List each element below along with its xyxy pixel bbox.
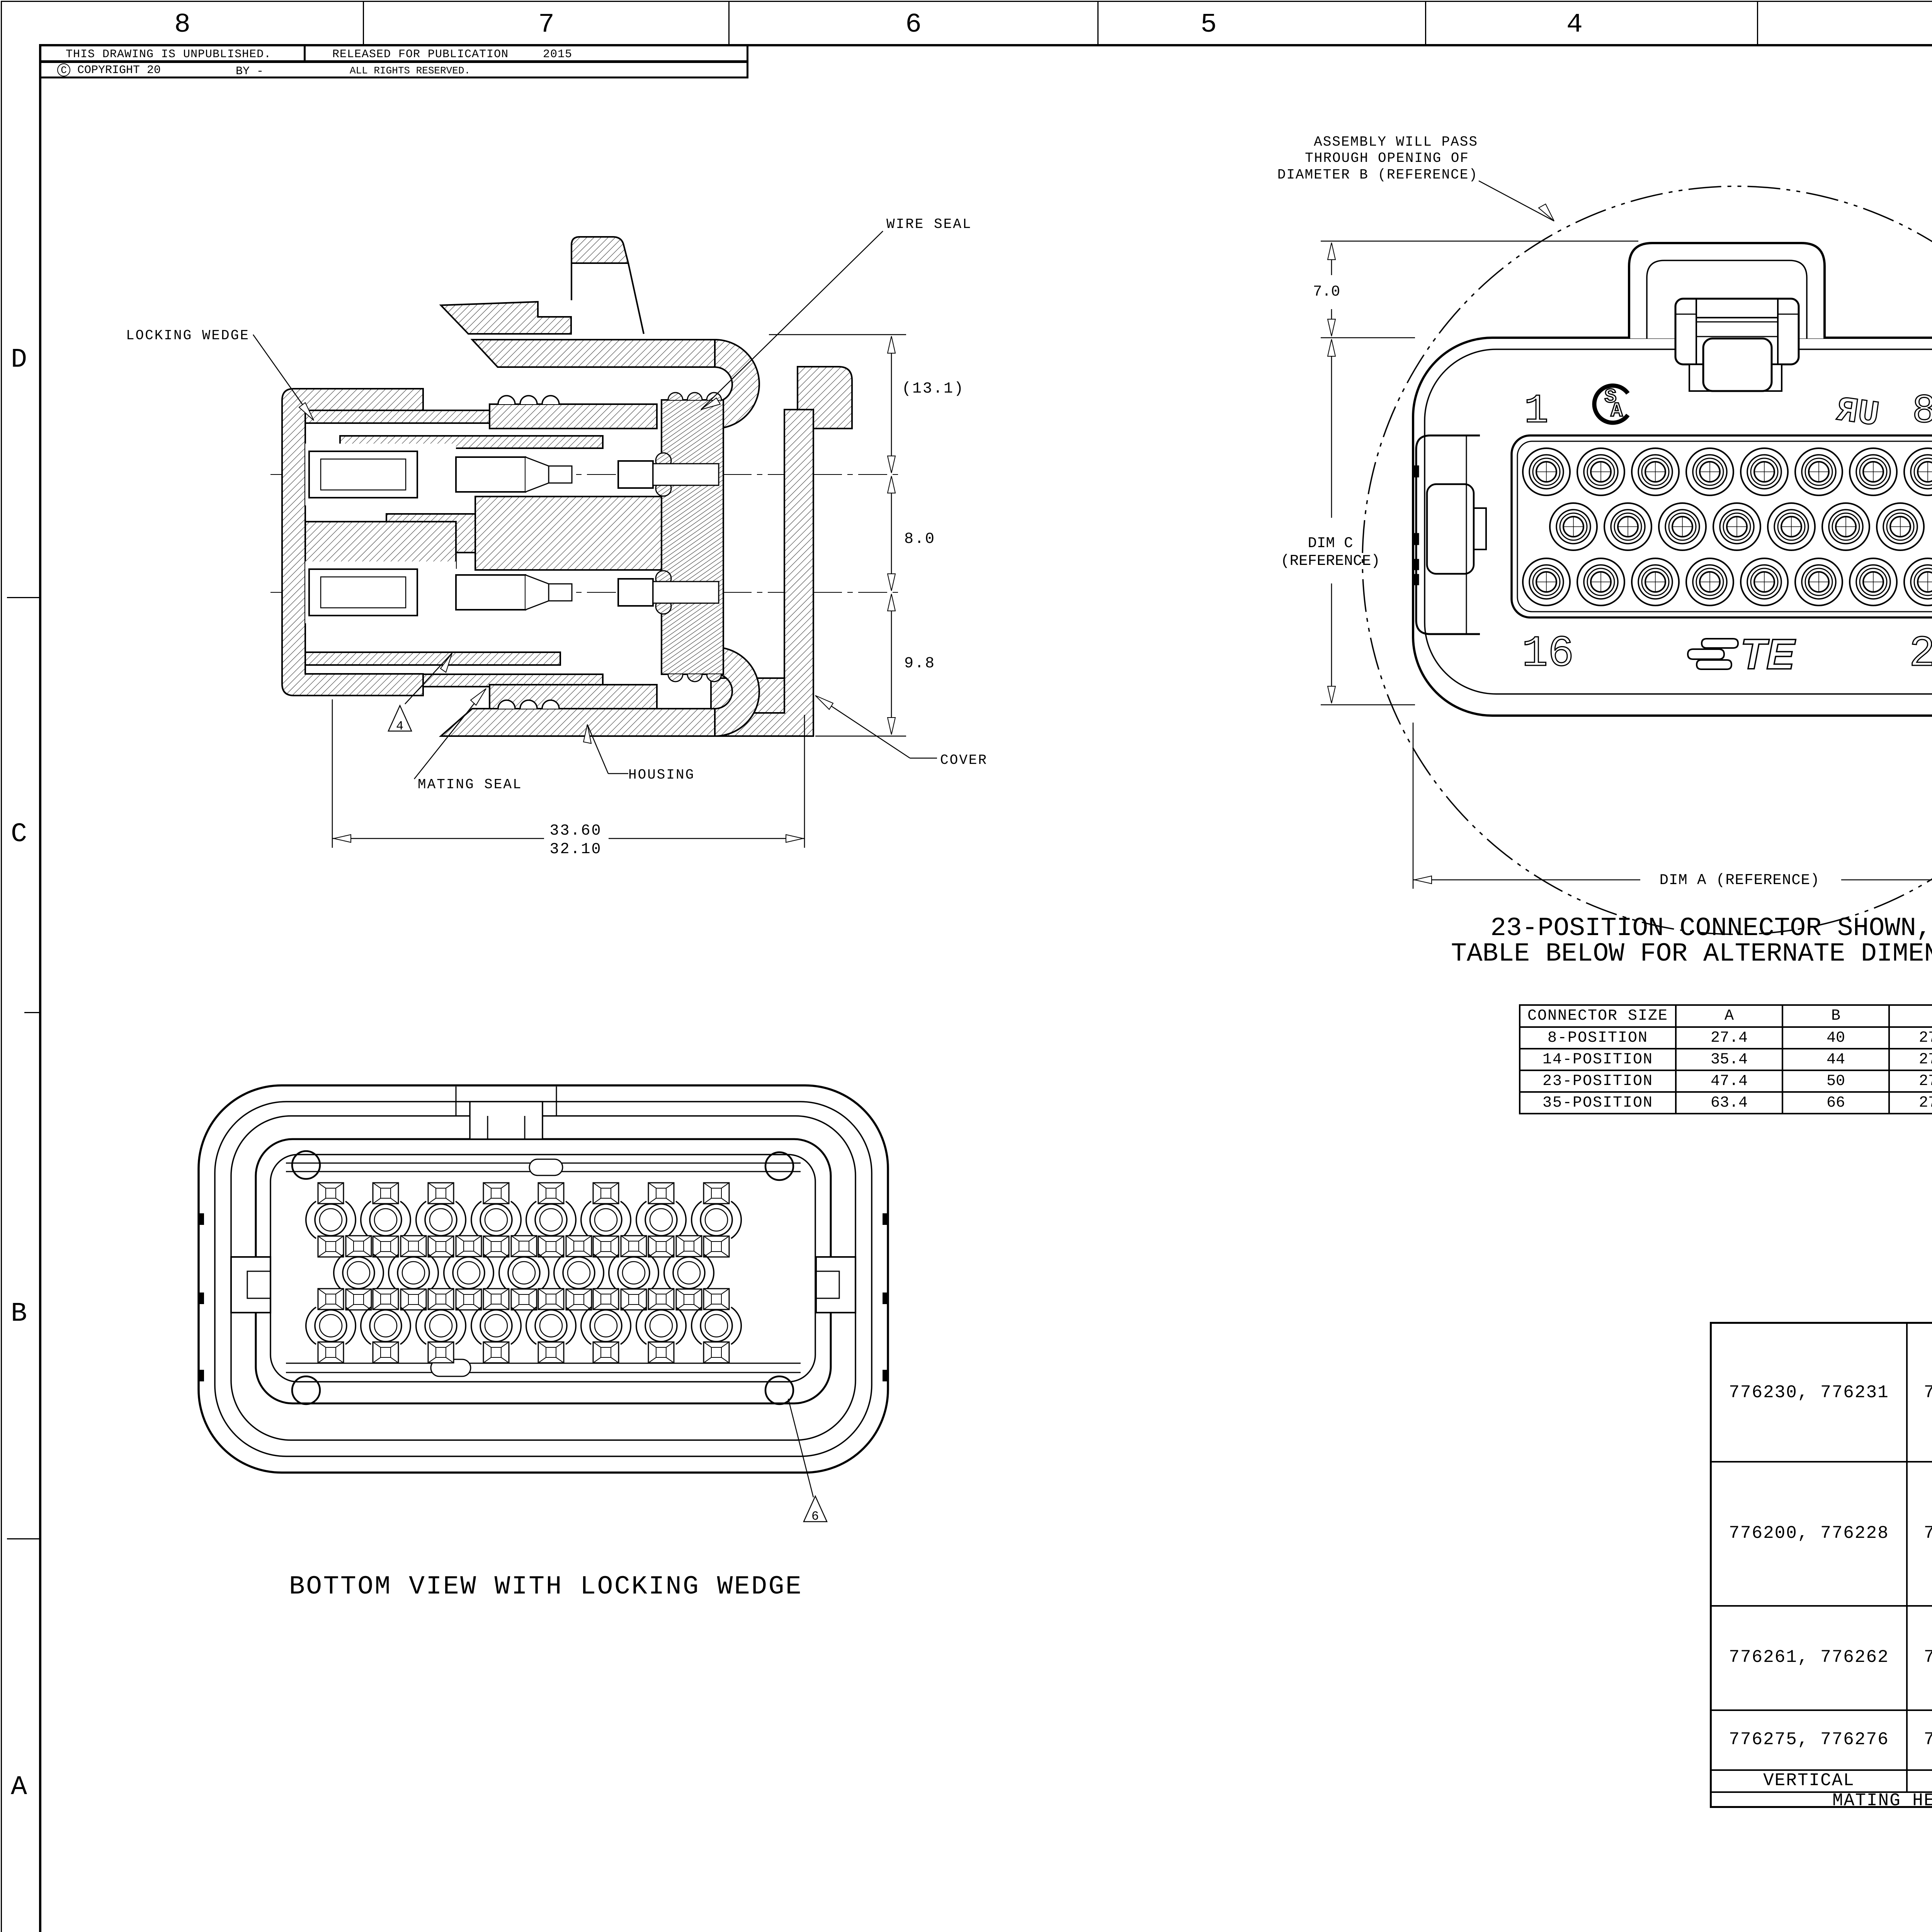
svg-text:WIRE SEAL: WIRE SEAL [886, 216, 972, 232]
svg-text:COVER: COVER [940, 752, 988, 768]
svg-text:THROUGH OPENING OF: THROUGH OPENING OF [1305, 150, 1469, 166]
svg-text:32.10: 32.10 [549, 841, 602, 858]
svg-text:6: 6 [811, 1509, 819, 1524]
svg-text:HOUSING: HOUSING [628, 767, 695, 783]
svg-text:8: 8 [1912, 388, 1932, 434]
svg-text:16: 16 [1522, 629, 1574, 679]
svg-text:8.0: 8.0 [904, 531, 935, 548]
svg-text:23: 23 [1909, 629, 1932, 679]
svg-text:UR: UR [1835, 391, 1881, 436]
svg-text:4: 4 [396, 719, 403, 733]
svg-text:9.8: 9.8 [904, 655, 935, 672]
svg-text:MATING SEAL: MATING SEAL [418, 777, 522, 793]
svg-text:ASSEMBLY WILL PASS: ASSEMBLY WILL PASS [1314, 134, 1478, 150]
svg-text:(REFERENCE): (REFERENCE) [1281, 553, 1380, 570]
svg-text:DIAMETER B (REFERENCE): DIAMETER B (REFERENCE) [1277, 167, 1478, 183]
svg-text:DIM C: DIM C [1308, 535, 1353, 552]
svg-text:33.60: 33.60 [549, 822, 602, 840]
svg-text:TE: TE [1740, 631, 1796, 678]
svg-text:(13.1): (13.1) [902, 380, 964, 398]
svg-text:LOCKING WEDGE: LOCKING WEDGE [126, 328, 250, 344]
svg-text:7.0: 7.0 [1313, 283, 1340, 300]
svg-text:A: A [1611, 400, 1623, 422]
svg-text:DIM A (REFERENCE): DIM A (REFERENCE) [1660, 872, 1820, 889]
svg-text:1: 1 [1524, 388, 1548, 434]
